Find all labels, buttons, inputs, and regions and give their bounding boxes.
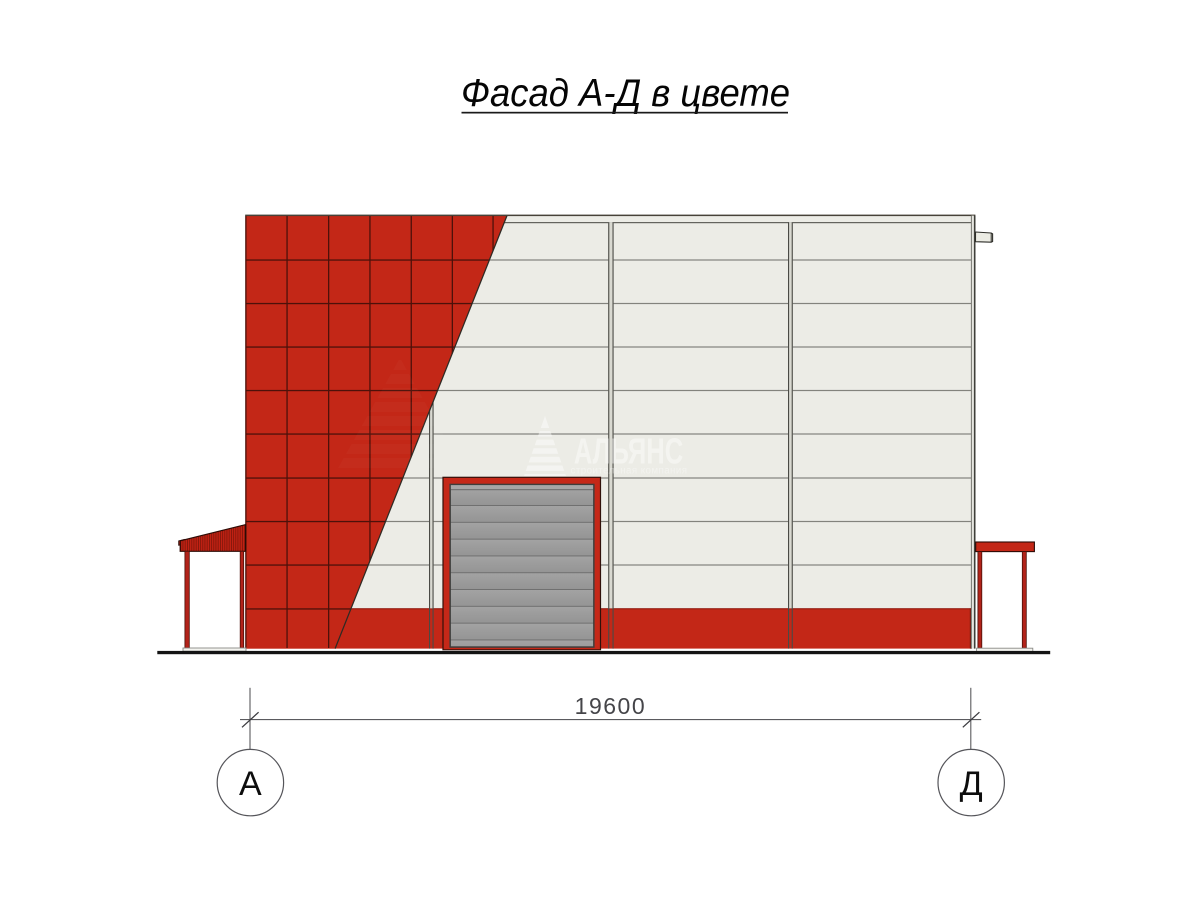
svg-text:19600: 19600 bbox=[575, 693, 646, 719]
svg-text:Фасад А-Д в цвете: Фасад А-Д в цвете bbox=[461, 71, 790, 114]
svg-text:А: А bbox=[239, 765, 262, 803]
svg-text:строительная компания: строительная компания bbox=[571, 466, 688, 477]
svg-text:Д: Д bbox=[960, 765, 983, 803]
